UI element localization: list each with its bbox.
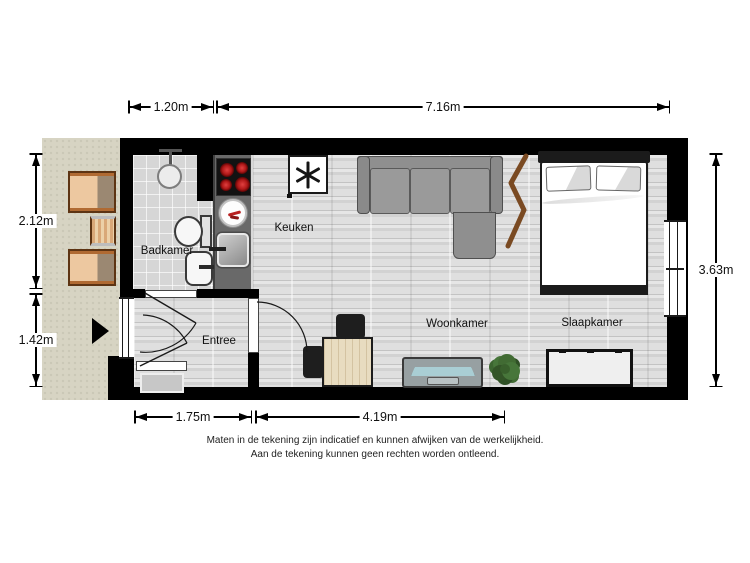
bathroom-faucet-icon [199,265,214,269]
dresser-handle [615,350,622,353]
disclaimer-line-1: Maten in de tekening zijn indicatief en … [98,434,652,448]
cooktop-burner [235,177,250,192]
disclaimer-line-2: Aan de tekening kunnen geen rechten word… [98,448,652,462]
dim-tick [710,386,723,388]
plant-icon [500,364,510,374]
cooktop-icon [216,158,251,196]
sofa [357,156,503,259]
dim-arrowhead-icon [32,374,40,385]
cooktop-burner [220,179,232,191]
dim-arrowhead-icon [130,103,141,111]
dim-label: 4.19m [360,410,401,424]
window-right [664,220,686,317]
sofa-armrest [357,156,370,214]
tv [402,357,483,388]
room-divider-screen-icon [504,153,532,249]
fridge-icon [288,155,328,194]
dim-arrowhead-icon [657,103,668,111]
dim-right: 3.63m [709,153,723,387]
dim-top-large: 7.16m [216,100,670,114]
sofa-armrest [490,156,503,214]
dim-left-bottom: 1.42m [29,293,43,387]
dim-label: 2.12m [16,214,57,228]
dim-tick [669,101,671,114]
dresser-handle [559,350,566,353]
dim-bottom-small: 1.75m [134,410,252,424]
room-label-entree: Entree [202,335,236,347]
dining-chair-top [336,314,365,339]
dim-bottom-large: 4.19m [255,410,505,424]
sofa-cushion [370,168,410,214]
fridge-foot [287,194,292,198]
sofa-chaise [453,212,496,259]
dim-arrowhead-icon [32,276,40,287]
tv-screen [411,367,475,376]
pillow [596,165,642,191]
dim-top-small: 1.20m [128,100,214,114]
dim-arrowhead-icon [712,155,720,166]
shower-head-icon [157,164,182,189]
dim-left-top: 2.12m [29,153,43,289]
floorplan-canvas: Badkamer Keuken Entree Woonkamer Slaapka… [0,0,750,563]
dim-label: 1.42m [16,333,57,347]
dim-arrowhead-icon [257,413,268,421]
dim-arrowhead-icon [492,413,503,421]
dim-tick [504,411,506,424]
dim-arrowhead-icon [201,103,212,111]
room-label-badkamer: Badkamer [141,245,193,257]
dim-tick [30,288,43,290]
sofa-cushion [410,168,450,214]
dim-arrowhead-icon [136,413,147,421]
cooktop-burner [236,162,248,174]
room-label-slaapkamer: Slaapkamer [561,317,622,329]
dim-label: 7.16m [423,100,464,114]
room-label-keuken: Keuken [274,222,313,234]
dresser-handle [587,350,594,353]
bed [538,151,650,296]
kitchen-plate-icon [219,199,247,227]
dim-label: 1.20m [151,100,192,114]
dim-label: 1.75m [173,410,214,424]
room-label-woonkamer: Woonkamer [426,318,488,330]
balcony-side-table [90,216,116,246]
window-transom [666,268,684,270]
tv-stand [427,377,459,385]
balcony-chair-2 [68,249,116,286]
balcony-chair-1 [68,171,116,213]
pillow [546,165,592,192]
bed-footboard [540,285,648,295]
dining-table [322,337,373,387]
dim-arrowhead-icon [712,374,720,385]
dresser [546,349,633,387]
plate-garnish [230,215,239,220]
disclaimer: Maten in de tekening zijn indicatief en … [98,434,652,462]
kitchen-faucet-icon [209,247,226,251]
bathroom-kitchen-wall [197,155,213,201]
dim-tick [213,101,215,114]
cooktop-burner [220,163,234,177]
dim-label: 3.63m [696,263,737,277]
toilet-icon [174,216,203,247]
dim-arrowhead-icon [32,155,40,166]
dim-arrowhead-icon [32,295,40,306]
entrance-direction-arrow-icon [92,318,109,344]
dim-tick [30,386,43,388]
dim-arrowhead-icon [218,103,229,111]
dim-arrowhead-icon [239,413,250,421]
dim-tick [251,411,253,424]
sofa-cushion [450,168,490,214]
